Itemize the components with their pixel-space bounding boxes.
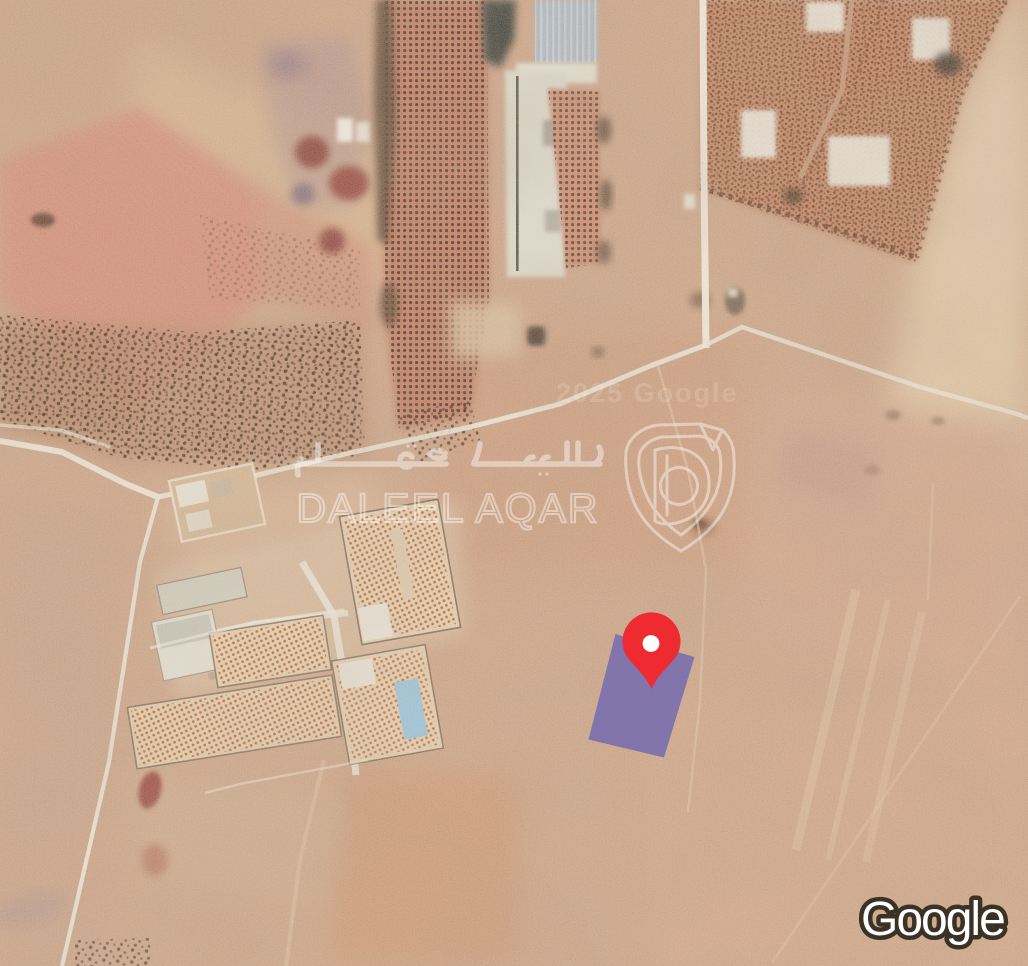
svg-text:2025 Google: 2025 Google <box>556 378 739 408</box>
svg-text:Google: Google <box>861 893 1004 946</box>
svg-text:DALEEL AQAR: DALEEL AQAR <box>296 485 599 531</box>
